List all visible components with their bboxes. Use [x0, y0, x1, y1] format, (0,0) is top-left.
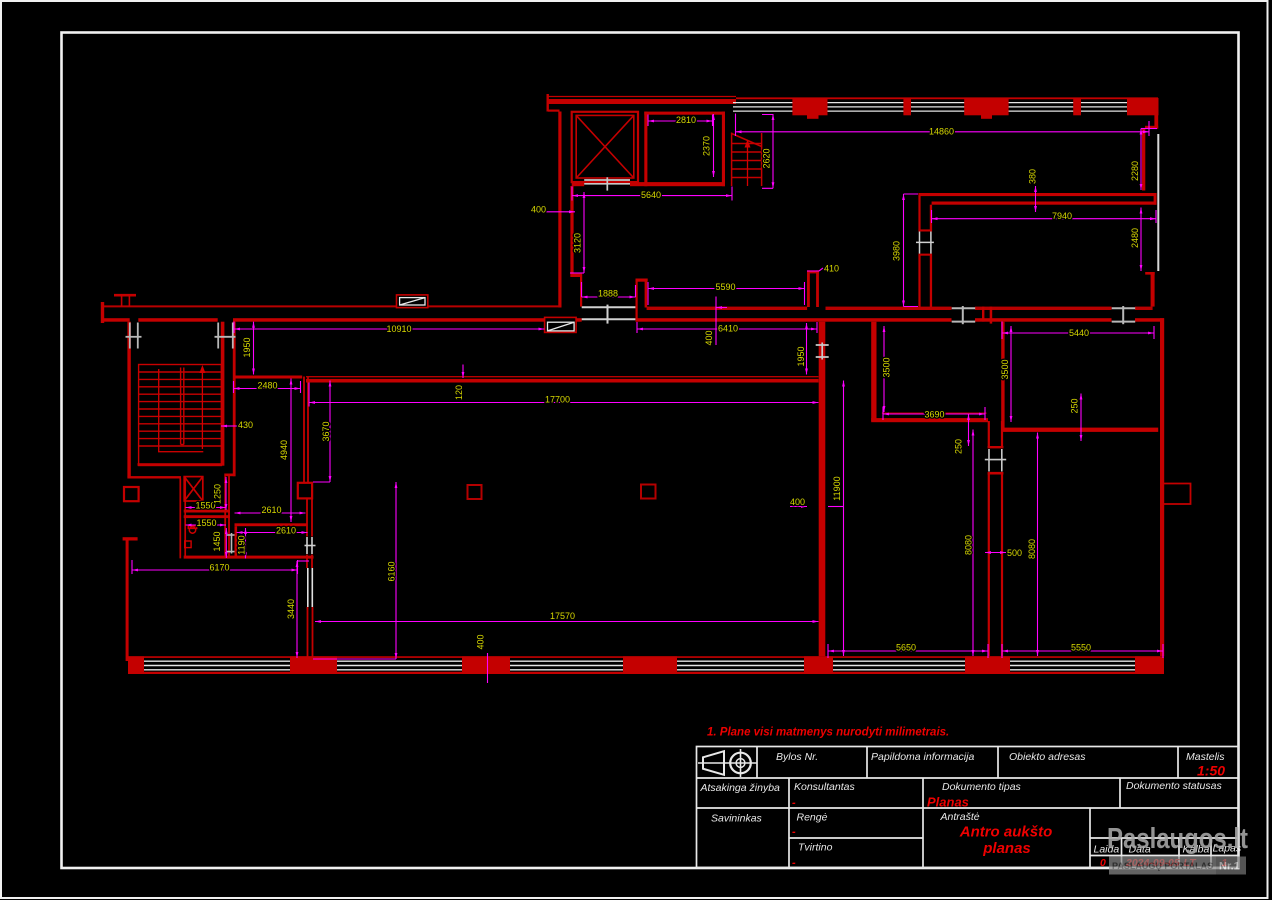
- svg-text:1888: 1888: [598, 289, 618, 299]
- svg-text:1:50: 1:50: [1197, 763, 1225, 779]
- svg-text:120: 120: [454, 385, 464, 400]
- svg-text:1950: 1950: [796, 346, 806, 366]
- svg-text:5640: 5640: [641, 190, 661, 200]
- svg-text:2610: 2610: [262, 505, 282, 515]
- svg-text:2620: 2620: [762, 148, 772, 168]
- svg-text:3120: 3120: [573, 233, 583, 253]
- svg-text:7940: 7940: [1052, 211, 1072, 221]
- svg-text:17700: 17700: [545, 395, 570, 405]
- svg-text:17570: 17570: [550, 611, 575, 621]
- svg-text:planas: planas: [982, 840, 1031, 857]
- svg-text:3980: 3980: [892, 241, 902, 261]
- svg-text:1550: 1550: [197, 518, 217, 528]
- svg-text:8080: 8080: [964, 535, 974, 555]
- svg-text:8080: 8080: [1027, 539, 1037, 559]
- svg-text:500: 500: [1007, 548, 1022, 558]
- svg-text:5650: 5650: [896, 643, 916, 653]
- svg-text:2480: 2480: [258, 381, 278, 391]
- svg-text:6160: 6160: [387, 561, 397, 581]
- svg-text:Obiekto adresas: Obiekto adresas: [1009, 751, 1086, 763]
- svg-text:250: 250: [954, 439, 964, 454]
- svg-text:2280: 2280: [1130, 161, 1140, 181]
- svg-text:5550: 5550: [1071, 643, 1091, 653]
- svg-text:1. Plane visi matmenys nurodyt: 1. Plane visi matmenys nurodyti milimetr…: [707, 727, 949, 739]
- svg-text:1190: 1190: [237, 535, 247, 554]
- svg-text:Papildoma informacija: Papildoma informacija: [871, 751, 974, 763]
- svg-text:-: -: [792, 826, 796, 838]
- svg-text:Savininkas: Savininkas: [711, 813, 763, 825]
- svg-text:Paslaugos.lt: Paslaugos.lt: [1107, 823, 1248, 855]
- svg-text:3440: 3440: [286, 599, 296, 619]
- svg-text:Nr.1: Nr.1: [1219, 861, 1240, 873]
- svg-text:Tvirtino: Tvirtino: [798, 842, 833, 854]
- svg-text:10910: 10910: [387, 324, 412, 334]
- svg-text:430: 430: [238, 420, 253, 430]
- svg-text:PASLAUGŲ PORTALAS: PASLAUGŲ PORTALAS: [1112, 861, 1213, 871]
- svg-text:Mastelis: Mastelis: [1186, 751, 1225, 763]
- svg-text:3500: 3500: [1000, 359, 1010, 379]
- svg-text:5590: 5590: [716, 282, 736, 292]
- svg-text:400: 400: [531, 205, 546, 215]
- svg-text:4940: 4940: [279, 440, 289, 460]
- svg-text:1950: 1950: [242, 337, 252, 357]
- svg-text:14860: 14860: [929, 127, 954, 137]
- svg-text:5440: 5440: [1069, 328, 1089, 338]
- svg-text:1450: 1450: [212, 531, 222, 551]
- svg-text:Dokumento tipas: Dokumento tipas: [942, 781, 1022, 793]
- svg-text:3690: 3690: [925, 410, 945, 420]
- svg-text:2480: 2480: [1130, 228, 1140, 248]
- svg-text:3500: 3500: [882, 357, 892, 377]
- svg-text:380: 380: [1028, 169, 1038, 184]
- svg-text:-: -: [792, 857, 796, 869]
- svg-text:11900: 11900: [832, 476, 842, 500]
- svg-text:400: 400: [475, 634, 485, 649]
- svg-text:Antro aukšto: Antro aukšto: [959, 824, 1053, 841]
- svg-text:400: 400: [790, 497, 805, 507]
- svg-text:Dokumento statusas: Dokumento statusas: [1126, 780, 1222, 792]
- svg-text:1250: 1250: [213, 484, 223, 504]
- svg-text:2610: 2610: [276, 526, 296, 536]
- svg-text:-: -: [792, 797, 796, 809]
- svg-text:250: 250: [1070, 398, 1080, 413]
- svg-text:0: 0: [1100, 857, 1106, 869]
- svg-text:Atsakinga žinyba: Atsakinga žinyba: [700, 782, 781, 794]
- svg-text:Konsultantas: Konsultantas: [794, 781, 855, 793]
- svg-text:6410: 6410: [718, 324, 738, 334]
- svg-text:400: 400: [704, 330, 714, 345]
- svg-text:6170: 6170: [210, 563, 230, 573]
- svg-text:3670: 3670: [321, 421, 331, 441]
- svg-text:Antraštė: Antraštė: [940, 811, 980, 823]
- svg-text:410: 410: [824, 264, 839, 274]
- svg-text:Rengė: Rengė: [797, 812, 828, 824]
- svg-text:Bylos Nr.: Bylos Nr.: [776, 751, 818, 763]
- svg-text:2810: 2810: [676, 115, 696, 125]
- svg-text:2370: 2370: [702, 136, 712, 156]
- svg-text:Planas: Planas: [927, 795, 969, 810]
